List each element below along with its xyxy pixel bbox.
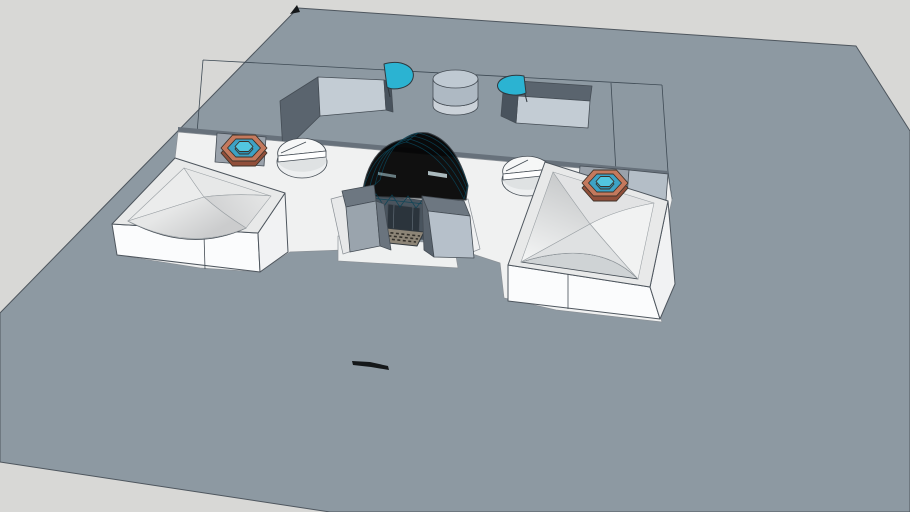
model-viewer-stage (0, 0, 910, 512)
wedge-cylinder-left (277, 138, 327, 178)
abutment-front (428, 211, 474, 258)
abutment-front (346, 201, 380, 252)
roof-drum-skylight (433, 70, 478, 115)
fountain-island-top (235, 142, 253, 152)
fountain-right (582, 170, 628, 201)
model-viewport-canvas[interactable] (0, 0, 910, 512)
drum-top (433, 70, 478, 88)
fountain-left (221, 135, 267, 166)
fountain-island-top (596, 177, 614, 187)
pit-lit-wall (318, 77, 386, 116)
